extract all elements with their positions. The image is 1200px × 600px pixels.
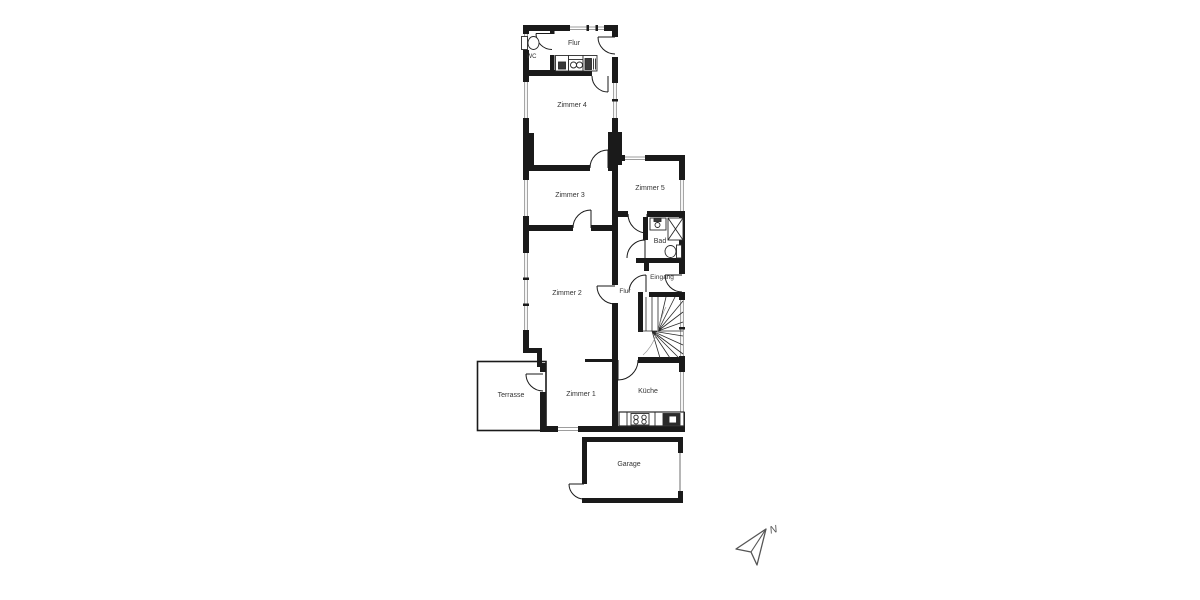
wall-segment (612, 31, 618, 37)
window-mullion (587, 25, 590, 31)
bad-toilet-icon (665, 245, 682, 258)
wall-segment (612, 118, 618, 132)
wall-segment (523, 165, 590, 171)
label-bad: Bad (654, 238, 667, 245)
wall-segment (523, 170, 529, 180)
wall-segment (582, 442, 587, 484)
label-wc: WC (527, 54, 538, 60)
wall-segment (540, 363, 546, 372)
stove-icon (631, 414, 649, 426)
label-zimmer5: Zimmer 5 (635, 185, 665, 192)
floorplan-drawing: WC Flur Zimmer 4 Zimmer 3 Zimmer 5 Bad E… (0, 0, 1200, 600)
wall-segment (591, 225, 618, 231)
wall-segment (585, 359, 618, 362)
wall-segment (612, 365, 618, 432)
wall-segment (582, 498, 683, 503)
wall-segment (612, 303, 618, 365)
wall-segment (644, 258, 649, 271)
wall-segment (550, 55, 555, 71)
wall-segment (612, 57, 618, 83)
wall-segment (523, 118, 529, 133)
window-mullion (523, 304, 529, 307)
window-mullion (523, 278, 529, 281)
wall-segment (678, 491, 683, 503)
wall-segment (608, 165, 618, 171)
wall-segment (523, 133, 534, 170)
kitchen-counter (619, 412, 684, 426)
shower-icon (668, 218, 683, 240)
label-zimmer4: Zimmer 4 (557, 102, 587, 109)
floorplan-canvas: WC Flur Zimmer 4 Zimmer 3 Zimmer 5 Bad E… (0, 0, 1200, 600)
wall-segment (638, 357, 685, 363)
label-zimmer2: Zimmer 2 (552, 290, 582, 297)
wall-segment (649, 292, 685, 297)
washbasin-icon (556, 56, 569, 72)
wall-segment (638, 292, 643, 332)
wall-segment (523, 25, 570, 31)
wall-segment (523, 216, 529, 253)
washing-machine-icon (569, 56, 584, 72)
wall-segment (582, 437, 683, 442)
wall-segment (523, 225, 573, 231)
wall-segment (636, 258, 685, 263)
wall-segment (618, 211, 628, 217)
kitchen-sink-icon (663, 414, 680, 426)
wall-segment (678, 437, 683, 453)
wall-segment (618, 155, 625, 161)
label-garage: Garage (617, 461, 640, 468)
label-eingang: Eingang (650, 274, 674, 281)
label-zimmer3: Zimmer 3 (555, 192, 585, 199)
dryer-icon (583, 56, 597, 72)
label-zimmer1: Zimmer 1 (566, 391, 596, 398)
wall-segment (679, 155, 685, 180)
label-flur-mid: Flur (619, 288, 631, 295)
wall-segment (523, 31, 529, 34)
wall-segment (578, 426, 685, 432)
wall-segment (604, 25, 618, 31)
wall-segment (523, 348, 542, 353)
toilet-icon (522, 37, 540, 50)
bad-washbasin-icon (650, 218, 666, 230)
wall-segment (647, 211, 685, 217)
label-terrasse: Terrasse (498, 392, 525, 399)
window-mullion (612, 99, 618, 102)
window-mullion (596, 25, 599, 31)
label-kueche: Küche (638, 388, 658, 395)
window-mullion (679, 327, 685, 330)
label-flur-top: Flur (568, 40, 581, 47)
